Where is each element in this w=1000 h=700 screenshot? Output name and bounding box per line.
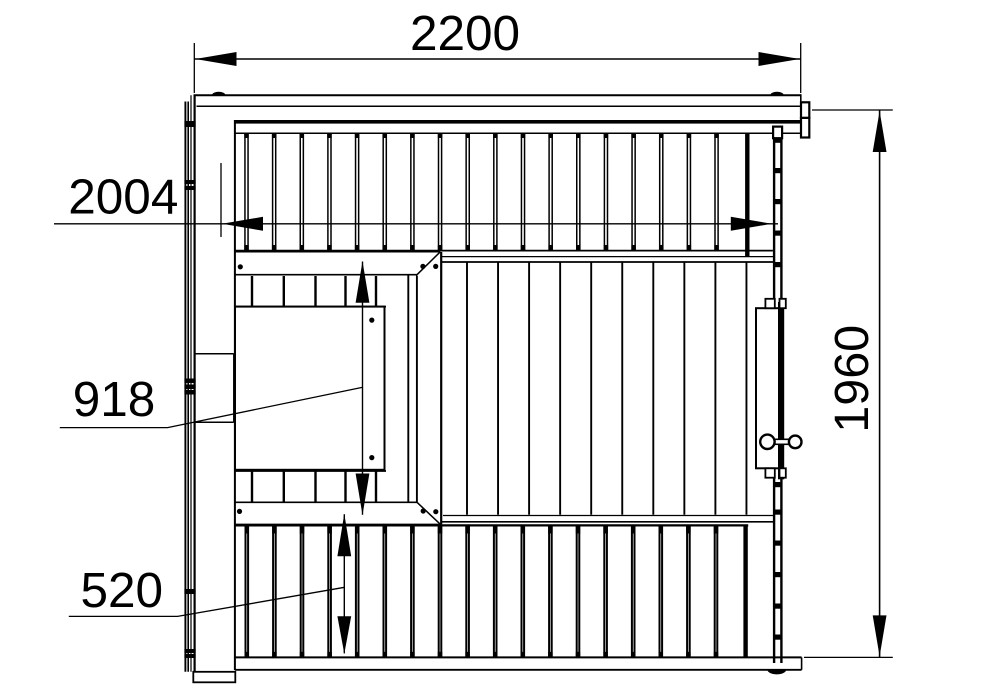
svg-text:2200: 2200 <box>410 6 520 61</box>
svg-text:1960: 1960 <box>825 325 879 433</box>
svg-text:2004: 2004 <box>68 170 178 225</box>
svg-text:520: 520 <box>81 563 164 618</box>
svg-text:918: 918 <box>73 372 156 427</box>
